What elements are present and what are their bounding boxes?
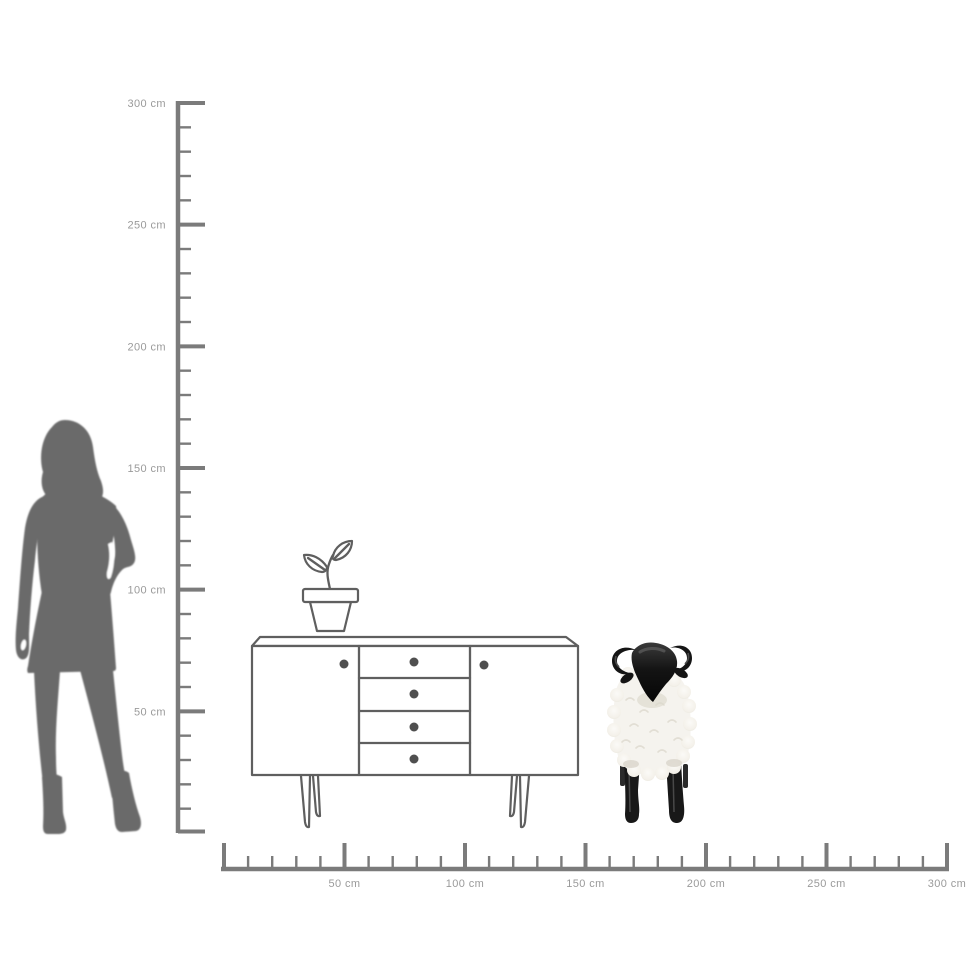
sheep-figurine <box>607 642 697 823</box>
vertical-ruler: 300 cm250 cm200 cm150 cm100 cm50 cm <box>128 98 205 833</box>
plant-drawing <box>303 541 358 631</box>
v-ruler-label: 100 cm <box>128 585 166 597</box>
v-ruler-label: 300 cm <box>128 98 166 110</box>
v-ruler-label: 150 cm <box>128 463 166 475</box>
sideboard-leg-front-right <box>520 776 529 827</box>
pot-rim <box>303 589 358 602</box>
sideboard-leg-back-right <box>510 776 517 816</box>
h-ruler-label: 100 cm <box>446 878 484 890</box>
h-ruler-label: 250 cm <box>807 878 845 890</box>
sheep-rear-leg-left <box>620 764 625 786</box>
drawer-knob-2 <box>410 690 419 699</box>
scale-diagram: 300 cm250 cm200 cm150 cm100 cm50 cm 50 c… <box>0 0 970 971</box>
silhouette-torso <box>37 492 116 595</box>
silhouette-head <box>41 420 103 497</box>
drawer-knob-1 <box>410 658 419 667</box>
silhouette-right-boot <box>110 771 141 832</box>
v-ruler-label: 200 cm <box>128 341 166 353</box>
sideboard-leg-front-left <box>301 776 310 827</box>
drawer-knob-4 <box>410 755 419 764</box>
sheep-rear-leg-right <box>683 764 688 788</box>
v-ruler-label: 50 cm <box>134 706 166 718</box>
h-ruler-label: 200 cm <box>687 878 725 890</box>
door-knob-right <box>480 661 489 670</box>
pot-body <box>310 602 351 631</box>
sideboard-drawing <box>252 637 578 827</box>
h-ruler-label: 300 cm <box>928 878 966 890</box>
silhouette-left-leg <box>34 671 60 792</box>
v-ruler-label: 250 cm <box>128 220 166 232</box>
drawer-knob-3 <box>410 723 419 732</box>
silhouette-skirt <box>27 591 116 673</box>
silhouette-left-boot <box>42 774 66 834</box>
diagram-canvas: 300 cm250 cm200 cm150 cm100 cm50 cm 50 c… <box>0 0 970 971</box>
h-ruler-label: 150 cm <box>566 878 604 890</box>
horizontal-ruler: 50 cm100 cm150 cm200 cm250 cm300 cm <box>221 843 966 890</box>
sheep-leg-shadow-left <box>623 760 639 768</box>
sideboard-leg-back-left <box>313 776 320 816</box>
sheep-leg-shadow-right <box>666 759 682 767</box>
woman-silhouette <box>16 420 141 834</box>
plant-stem <box>327 555 333 589</box>
h-ruler-label: 50 cm <box>329 878 361 890</box>
sideboard-top <box>252 637 578 646</box>
sheep-leg-highlight-2 <box>673 768 674 812</box>
door-knob-left <box>340 660 349 669</box>
